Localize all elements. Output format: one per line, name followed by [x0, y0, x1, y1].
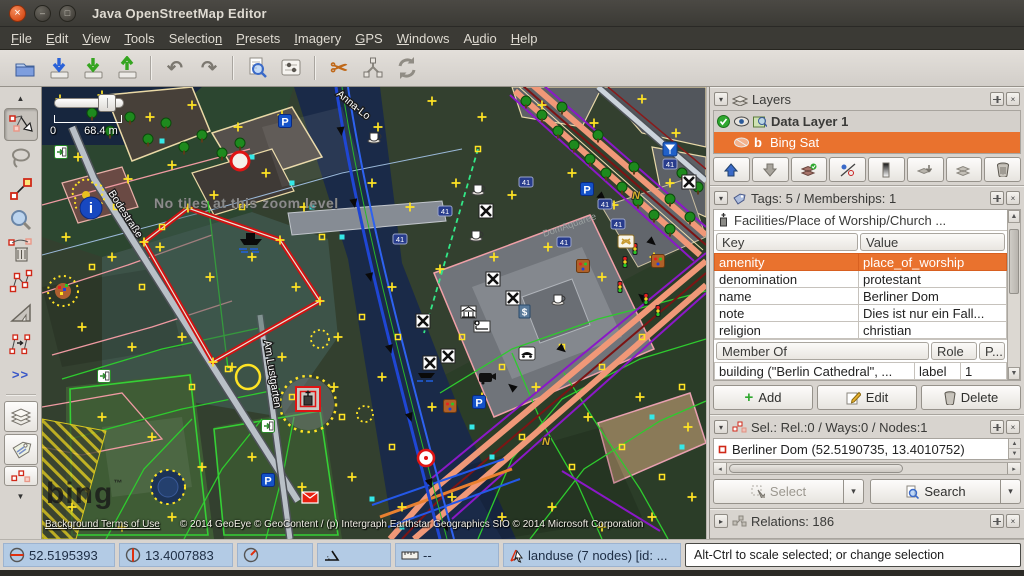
menu-file[interactable]: File: [4, 29, 39, 48]
latitude-value: 52.5195393: [29, 548, 98, 563]
menu-bar: File Edit View Tools Selection Presets I…: [0, 27, 1024, 50]
title-bar: × – □ Java OpenStreetMap Editor: [0, 0, 1024, 27]
edit-pencil-icon: [846, 391, 861, 405]
role-column-header[interactable]: Role: [931, 342, 977, 360]
layer-name: Data Layer 1: [771, 114, 848, 129]
menu-windows[interactable]: Windows: [390, 29, 457, 48]
edit-tag-button[interactable]: Edit: [817, 385, 917, 410]
scrollbar-track[interactable]: [727, 463, 1007, 474]
close-selection-panel-button[interactable]: ×: [1006, 420, 1020, 434]
search-document-icon: [245, 56, 269, 80]
search-icon: [905, 485, 919, 499]
svg-text:41: 41: [666, 160, 674, 169]
svg-text:P: P: [281, 117, 288, 129]
water-tap-icon: [663, 142, 677, 156]
search-split-button: Search ▾: [870, 479, 1021, 504]
redo-icon: ↷: [201, 59, 217, 78]
delete-layer-button[interactable]: [984, 157, 1021, 182]
preset-label: Facilities/Place of Worship/Church ...: [734, 213, 946, 228]
membership-table-header: Member Of Role P...: [714, 339, 1007, 362]
menu-presets[interactable]: Presets: [229, 29, 287, 48]
longitude-field: 13.4007883: [119, 543, 233, 567]
distance-value: --: [423, 548, 432, 563]
expand-relations-button[interactable]: ▸: [714, 514, 728, 528]
tag-row-denomination[interactable]: denominationprotestant: [715, 271, 1007, 288]
atm-icon: $: [519, 305, 530, 319]
open-file-button[interactable]: [8, 53, 42, 83]
toolbar-separator: [314, 56, 316, 80]
church-preset-icon: [718, 213, 729, 227]
josm-window: × – □ Java OpenStreetMap Editor File Edi…: [0, 0, 1024, 576]
hovered-object-value: landuse (7 nodes) [id: ...: [528, 548, 667, 563]
more-tools-label: >>: [12, 367, 29, 382]
download-icon: [47, 56, 71, 80]
tags-panel-toggle-button[interactable]: [4, 434, 38, 465]
draw-way-icon: [9, 177, 33, 201]
preferences-icon: [279, 56, 303, 80]
select-tool-button[interactable]: [4, 108, 38, 141]
delete-tool-button[interactable]: [4, 236, 38, 265]
membership-table: building ("Berlin Cathedral", ... label …: [714, 362, 1007, 380]
membership-row[interactable]: building ("Berlin Cathedral", ... label …: [715, 363, 1007, 380]
tags-table-area: Facilities/Place of Worship/Church ... K…: [713, 209, 1021, 381]
position-column-header[interactable]: P...: [979, 342, 1005, 360]
distance-field: --: [395, 543, 499, 567]
lasso-icon: [9, 146, 33, 170]
undo-button[interactable]: ↶: [158, 53, 192, 83]
select-move-icon: [8, 112, 34, 138]
tags-panel: ▾ Tags: 5 / Memberships: 1 ×: [710, 186, 1024, 415]
minimize-window-button[interactable]: –: [34, 5, 51, 22]
zoom-slider-handle[interactable]: [98, 94, 116, 112]
angle-icon: [323, 548, 340, 562]
parallel-way-tool-button[interactable]: [4, 329, 38, 358]
duplicate-icon: [956, 163, 972, 177]
draw-node-tool-button[interactable]: [4, 174, 38, 203]
zoom-slider[interactable]: [54, 98, 124, 108]
tag-row-religion[interactable]: religionchristian: [715, 322, 1007, 339]
upload-data-button[interactable]: [110, 53, 144, 83]
visibility-eye-translucent-icon[interactable]: [734, 137, 749, 148]
tags-panel-header: ▾ Tags: 5 / Memberships: 1 ×: [710, 187, 1024, 209]
arrow-up-blue-icon: [724, 163, 738, 177]
side-panels: ▾ Layers ×: [710, 87, 1024, 539]
open-folder-icon: [13, 56, 37, 80]
scroll-down-icon: ▼: [17, 492, 25, 501]
select-split-button: Select ▾: [713, 479, 864, 504]
svg-text:i: i: [89, 200, 93, 217]
scroll-up-button[interactable]: ▲: [1008, 210, 1020, 223]
map-canvas[interactable]: PPPP41414141414141NN i: [42, 87, 706, 539]
layers-panel-toggle-button[interactable]: [4, 401, 38, 432]
search-button[interactable]: [240, 53, 274, 83]
close-tags-panel-button[interactable]: ×: [1006, 191, 1020, 205]
envelope-icon: [302, 492, 318, 503]
search-dropdown-button[interactable]: ▾: [1001, 479, 1021, 504]
selection-panel: ▾ Sel.: Rel.:0 / Ways:0 / Nodes:1 ×: [710, 415, 1024, 509]
visibility-eye-icon[interactable]: [734, 116, 749, 127]
map-render: PPPP41414141414141NN i: [42, 87, 706, 539]
add-tag-button[interactable]: + Add: [713, 385, 813, 410]
trash-icon: [996, 162, 1010, 177]
collapse-selection-button[interactable]: ▾: [714, 420, 728, 434]
magnifier-icon: [9, 208, 33, 232]
menu-imagery[interactable]: Imagery: [287, 29, 348, 48]
tag-icon: [10, 440, 32, 460]
selection-panel-header: ▾ Sel.: Rel.:0 / Ways:0 / Nodes:1 ×: [710, 416, 1024, 438]
svg-text:41: 41: [396, 235, 404, 244]
svg-text:P: P: [475, 398, 482, 410]
delete-tag-button[interactable]: Delete: [921, 385, 1021, 410]
svg-text:P: P: [264, 476, 271, 488]
main-toolbar: ↶ ↷ ✂: [0, 50, 1024, 87]
main-area: ▲: [0, 87, 1024, 539]
edit-toolbar: ▲: [0, 87, 42, 539]
window-title: Java OpenStreetMap Editor: [92, 6, 267, 21]
pin-icon: [993, 95, 1002, 104]
svg-text:N: N: [542, 436, 551, 448]
scrollbar-thumb[interactable]: [729, 464, 903, 473]
layers-panel-header: ▾ Layers ×: [710, 88, 1024, 110]
heading-compass-icon: [243, 547, 259, 563]
scroll-right-button[interactable]: ▸: [1007, 463, 1020, 474]
preset-row[interactable]: Facilities/Place of Worship/Church ...: [714, 210, 1007, 231]
latitude-icon: [9, 547, 25, 563]
select-dropdown-button[interactable]: ▾: [844, 479, 864, 504]
select-button[interactable]: Select: [713, 479, 844, 504]
selection-icon: [10, 469, 32, 483]
collapse-tags-button[interactable]: ▾: [714, 191, 728, 205]
spacer: [717, 136, 730, 149]
svg-text:41: 41: [441, 207, 449, 216]
status-bar: 52.5195393 13.4007883 --: [0, 539, 1024, 570]
layer-actions: [713, 157, 1021, 182]
lasso-tool-button[interactable]: [4, 143, 38, 172]
save-icon: [81, 56, 105, 80]
node-marker-icon: [718, 445, 727, 454]
maximize-window-button[interactable]: □: [59, 5, 76, 22]
parallel-way-icon: [8, 331, 34, 357]
way-nodes-icon: [8, 269, 34, 295]
plus-icon: +: [745, 389, 754, 406]
layer-list: Data Layer 1 b Bing Sat: [713, 110, 1021, 154]
menu-view[interactable]: View: [75, 29, 117, 48]
tag-row-amenity[interactable]: amenityplace_of_worship: [715, 254, 1007, 271]
improve-way-accuracy-button[interactable]: [4, 267, 38, 296]
tags-panel-icon: [732, 192, 747, 205]
menu-audio[interactable]: Audio: [456, 29, 503, 48]
terms-of-use-link[interactable]: Background Terms of Use: [45, 519, 160, 530]
taxi-icon: [519, 347, 535, 360]
bed-icon: [474, 321, 490, 332]
refresh-icon: [395, 56, 419, 80]
toolbar-separator: [6, 394, 36, 396]
more-tools-button[interactable]: >>: [4, 360, 38, 389]
ruler-icon: [401, 550, 419, 560]
move-layer-down-button[interactable]: [752, 157, 789, 182]
tag-row-name[interactable]: nameBerliner Dom: [715, 288, 1007, 305]
download-data-button[interactable]: [42, 53, 76, 83]
selection-list: Berliner Dom (52.5190735, 13.4010752) ▲▼: [713, 438, 1021, 460]
menu-tools[interactable]: Tools: [117, 29, 161, 48]
svg-text:b: b: [754, 136, 762, 149]
menu-help[interactable]: Help: [504, 29, 545, 48]
data-layer-icon: [753, 116, 767, 128]
longitude-value: 13.4007883: [145, 548, 214, 563]
save-button[interactable]: [76, 53, 110, 83]
svg-text:$: $: [522, 308, 528, 319]
extrude-tool-button[interactable]: [4, 298, 38, 327]
trash-icon: [944, 391, 956, 405]
roundabout-sign-icon: [231, 152, 249, 170]
toolbar-separator: [232, 56, 234, 80]
relations-panel-title: Relations: 186: [751, 514, 834, 529]
angle-field: [317, 543, 391, 567]
hovered-object-field: landuse (7 nodes) [id: ...: [503, 543, 681, 567]
status-hint: Alt-Ctrl to scale selected; or change se…: [685, 543, 1021, 567]
toggle-visibility-button[interactable]: [829, 157, 866, 182]
tag-table: amenityplace_of_worship denominationprot…: [714, 253, 1007, 339]
latitude-field: 52.5195393: [3, 543, 115, 567]
scissors-icon: ✂: [330, 58, 348, 79]
scale-cursor-icon: [509, 548, 524, 563]
close-relations-panel-button[interactable]: ×: [1006, 514, 1020, 528]
scroll-left-button[interactable]: ◂: [714, 463, 727, 474]
close-window-button[interactable]: ×: [9, 5, 26, 22]
selection-list-item[interactable]: Berliner Dom (52.5190735, 13.4010752): [714, 442, 1008, 457]
pin-icon: [993, 517, 1002, 526]
opacity-slider-button[interactable]: [868, 157, 905, 182]
trash-nodes-icon: [8, 238, 34, 264]
select-cursor-icon: [751, 485, 765, 498]
active-layer-check-icon: [717, 115, 730, 128]
sticky-pin-button[interactable]: [990, 92, 1004, 106]
zoom-tool-button[interactable]: [4, 205, 38, 234]
selection-panel-icon: [732, 421, 747, 433]
bing-layer-icon: b: [753, 136, 766, 149]
close-layers-panel-button[interactable]: ×: [1006, 92, 1020, 106]
combine-way-icon: [362, 57, 384, 79]
satellite-base: [42, 87, 706, 539]
toolbar-separator: [150, 56, 152, 80]
arrow-down-gray-icon: [763, 163, 777, 177]
scroll-down-button[interactable]: ▼: [1008, 367, 1020, 380]
merge-layer-button[interactable]: [907, 157, 944, 182]
svg-text:41: 41: [601, 200, 609, 209]
layer-activate-icon: [801, 163, 817, 177]
layers-panel-title: Layers: [752, 92, 791, 107]
opacity-gradient-icon: [882, 162, 890, 178]
tags-panel-title: Tags: 5 / Memberships: 1: [751, 191, 896, 206]
layer-row-data-layer[interactable]: Data Layer 1: [714, 111, 1020, 132]
extrude-icon: [9, 301, 33, 325]
member-of-column-header[interactable]: Member Of: [716, 342, 929, 360]
layers-panel-icon: [732, 93, 748, 106]
pin-icon: [993, 194, 1002, 203]
menu-edit[interactable]: Edit: [39, 29, 75, 48]
update-data-button[interactable]: [390, 53, 424, 83]
restriction-sign-icon: [418, 450, 434, 466]
layers-icon: [10, 407, 32, 427]
layers-panel: ▾ Layers ×: [710, 87, 1024, 186]
redo-button[interactable]: ↷: [192, 53, 226, 83]
move-layer-up-button[interactable]: [713, 157, 750, 182]
svg-text:41: 41: [522, 178, 530, 187]
split-way-button[interactable]: ✂: [322, 53, 356, 83]
combine-way-button[interactable]: [356, 53, 390, 83]
scrollbar-thumb[interactable]: [1009, 229, 1019, 294]
key-column-header[interactable]: Key: [716, 233, 858, 251]
value-column-header[interactable]: Value: [860, 233, 1005, 251]
selection-panel-toggle-button[interactable]: [4, 466, 38, 486]
sticky-pin-button[interactable]: [990, 514, 1004, 528]
scroll-up-icon: ▲: [17, 94, 25, 103]
toolbar-scroll-down-button[interactable]: ▼: [4, 488, 38, 504]
relations-panel-header: ▸ Relations: 186 ×: [710, 510, 1024, 532]
pretzel-icon: [618, 235, 634, 248]
longitude-icon: [125, 547, 141, 563]
menu-gps[interactable]: GPS: [348, 29, 389, 48]
svg-text:41: 41: [560, 238, 568, 247]
svg-text:41: 41: [614, 220, 622, 229]
selection-panel-title: Sel.: Rel.:0 / Ways:0 / Nodes:1: [751, 420, 928, 435]
preferences-button[interactable]: [274, 53, 308, 83]
museum-icon: [461, 306, 476, 318]
tags-vertical-scrollbar[interactable]: ▲ ▼: [1007, 210, 1020, 380]
selection-horizontal-scrollbar[interactable]: ◂ ▸: [713, 462, 1021, 475]
tag-row-note[interactable]: noteDies ist nur ein Fall...: [715, 305, 1007, 322]
layer-row-bing-sat[interactable]: b Bing Sat: [714, 132, 1020, 153]
undo-icon: ↶: [167, 59, 183, 78]
collapse-layers-button[interactable]: ▾: [714, 92, 728, 106]
tag-actions: + Add Edit: [713, 385, 1021, 410]
toolbar-scroll-up-button[interactable]: ▲: [4, 90, 38, 106]
menu-selection[interactable]: Selection: [162, 29, 229, 48]
church-node-selected[interactable]: [296, 387, 320, 411]
selection-list-spinner[interactable]: ▲▼: [1008, 439, 1020, 459]
upload-icon: [115, 56, 139, 80]
visibility-percent-icon: [840, 163, 856, 177]
search-button[interactable]: Search: [870, 479, 1001, 504]
duplicate-layer-button[interactable]: [946, 157, 983, 182]
activate-layer-button[interactable]: [791, 157, 828, 182]
heading-field: [237, 543, 313, 567]
selection-actions: Select ▾ Search ▾: [713, 479, 1021, 504]
merge-down-icon: [917, 163, 933, 177]
sticky-pin-button[interactable]: [990, 420, 1004, 434]
svg-text:N: N: [632, 190, 641, 202]
sticky-pin-button[interactable]: [990, 191, 1004, 205]
pin-icon: [993, 423, 1002, 432]
relations-panel: ▸ Relations: 186 ×: [710, 509, 1024, 539]
layer-name: Bing Sat: [770, 135, 819, 150]
info-icon: i: [80, 197, 102, 219]
window-buttons: × – □: [9, 5, 76, 22]
tag-table-header: Key Value: [714, 231, 1007, 253]
window-bottom-edge: [0, 570, 1024, 576]
relations-panel-icon: [732, 515, 747, 527]
svg-text:P: P: [583, 185, 590, 197]
